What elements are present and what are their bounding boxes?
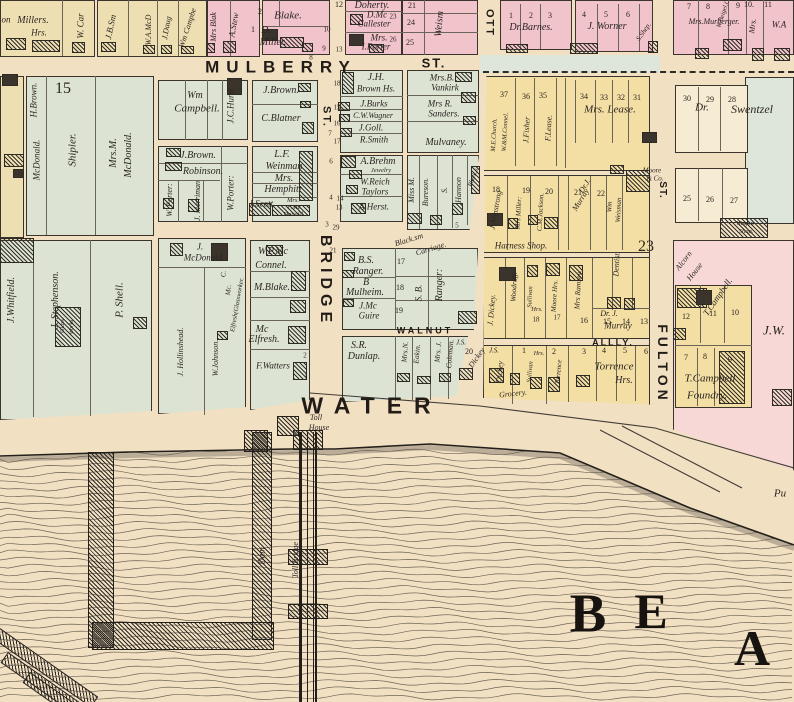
map-label-wagon: Wagon	[736, 221, 754, 228]
map-label-hrs: Hrs.	[615, 376, 633, 386]
building-hatched	[290, 300, 306, 313]
map-label-j-brown: J.Brown.	[263, 86, 299, 96]
building-hatched	[397, 373, 410, 382]
map-label-toll-bridge: Toll Bridge	[292, 542, 300, 578]
map-label-r-smith: R.Smith	[360, 136, 388, 145]
map-label-mcdonald: McDonald.	[33, 140, 42, 181]
water-contour-line	[0, 607, 792, 614]
map-label-j-mc: J.Mc	[359, 302, 377, 311]
building-hatched	[298, 83, 311, 92]
building-hatched	[300, 101, 311, 108]
map-label-6: 6	[644, 348, 648, 356]
parcel-line	[698, 87, 699, 151]
map-label-10: 10	[324, 27, 331, 34]
building-solid	[13, 169, 24, 178]
water-contour-line	[0, 651, 792, 657]
building-hatched	[752, 48, 764, 61]
water-contour-line	[0, 687, 792, 693]
building-hatched	[673, 328, 686, 340]
parcel-line	[395, 336, 396, 401]
map-label-i-porter: I.Porter	[362, 43, 391, 52]
map-label-black-sm: Black.sm	[394, 232, 424, 248]
parcel-line	[428, 248, 429, 329]
map-label-3: 3	[582, 348, 586, 356]
map-label-4: 4	[329, 195, 333, 202]
building-hatched	[463, 116, 476, 125]
parcel-line	[568, 346, 569, 402]
map-label-7: 7	[328, 131, 332, 138]
parcel-line	[565, 78, 566, 168]
map-label-17: 17	[397, 258, 405, 266]
building-hatched	[161, 45, 172, 54]
map-label-13: 13	[336, 47, 343, 54]
map-label-j-merriman: J. Merriman	[194, 181, 202, 221]
map-label-robinson: Robinson.	[183, 167, 223, 177]
map-label-3: 3	[325, 222, 329, 229]
map-label-13: 13	[336, 205, 343, 212]
water-contour-line	[0, 672, 792, 678]
map-label-sullivan: Sullivan	[527, 286, 535, 308]
parcel-line	[507, 176, 508, 250]
parcel-line	[556, 78, 557, 166]
parcel-line	[250, 349, 310, 350]
map-label-w-porter: W.Porter:	[227, 175, 236, 210]
map-label-mcdonald: McDonald	[184, 254, 223, 263]
map-label-harness-shop: Harness Shop.	[495, 242, 548, 251]
map-label-12: 12	[682, 313, 690, 321]
map-label-elfresh: Elfresh.	[248, 335, 279, 345]
parcel-line	[221, 146, 222, 222]
map-label-swentzel: Swentzel	[731, 103, 773, 115]
map-label-shipler: Shipler.	[68, 133, 79, 166]
parcel-line	[128, 0, 129, 56]
building-hatched	[452, 203, 463, 215]
dam-structure	[92, 622, 274, 650]
map-label-mrs: Mrs.	[275, 174, 294, 184]
building-hatched	[430, 215, 442, 225]
parcel-line	[558, 176, 559, 250]
building-hatched	[527, 265, 538, 277]
map-label-23: 23	[638, 239, 654, 255]
map-label-vankirk: Vankirk	[431, 84, 459, 93]
map-label-j-w: J.W.	[763, 324, 785, 337]
map-label-jewelry: Jewelry	[371, 168, 391, 175]
building-hatched	[344, 252, 355, 261]
map-label-w-a: W.A	[772, 21, 786, 30]
map-label-24: 24	[407, 19, 415, 27]
map-label-co: & Co.	[646, 176, 663, 183]
building-hatched	[72, 42, 85, 53]
map-label-mrs-murberger: Mrs.Murberger.	[689, 18, 740, 26]
map-label-foundry: Foundry.	[687, 391, 727, 402]
map-label-j: J.	[197, 243, 203, 252]
map-label-1: 1	[304, 374, 308, 381]
parcel-line	[203, 181, 204, 222]
map-label-c: C.	[220, 270, 228, 277]
map-label-37: 37	[500, 91, 508, 99]
map-label-w-reich: W.Reich	[360, 178, 389, 187]
building-hatched	[506, 44, 528, 53]
building-hatched	[291, 271, 306, 291]
building-hatched	[340, 128, 352, 137]
parcel-line	[157, 0, 158, 56]
water-contour-line	[0, 578, 792, 585]
map-label-j-c-hurst: J.C.Hurst	[227, 88, 236, 123]
map-label-j-s: J.S.	[456, 340, 466, 347]
map-label-bureson: Bureson.	[422, 178, 430, 206]
map-label-mrs-m: Mrs.M.	[109, 138, 119, 167]
map-label-10: 10	[731, 309, 739, 317]
water-contour-line	[0, 571, 792, 578]
building-hatched	[288, 326, 306, 344]
building-hatched	[341, 156, 356, 168]
map-label-donald: Donald	[283, 212, 303, 219]
map-label-4: 4	[582, 11, 586, 19]
map-label-5: 5	[604, 11, 608, 19]
map-label-2: 2	[529, 12, 533, 20]
map-label-w-p-mc: W.P.Mc	[258, 247, 288, 257]
map-label-miller: Miller.	[260, 38, 286, 48]
map-label-21: 21	[330, 248, 337, 255]
water-contour-line	[0, 521, 792, 527]
parcel-line	[675, 345, 752, 346]
map-label-22: 22	[597, 190, 605, 198]
water-contour-line	[0, 478, 792, 484]
map-label-s-b: S. B.	[415, 285, 424, 302]
building-solid	[2, 74, 18, 86]
map-label-8: 8	[706, 3, 710, 11]
river-letter-a: A	[734, 623, 770, 673]
map-label-blake: Blake.	[274, 11, 302, 22]
map-label-l-f: L.F.	[274, 150, 289, 160]
map-label-f-watters: F.Watters	[256, 362, 290, 371]
water-contour-line	[0, 492, 792, 498]
parcel-line	[616, 346, 617, 401]
water-contour-line	[0, 694, 792, 700]
map-label-hrs: Hrs.	[31, 29, 47, 38]
street-label-st: ST.	[422, 57, 447, 70]
water-contour-line	[0, 506, 792, 512]
map-label-house: House	[309, 424, 329, 432]
water-contour-line	[0, 564, 792, 571]
building-hatched	[143, 45, 155, 54]
map-label-callester: Callester	[358, 20, 391, 29]
street-label-st: ST.	[657, 181, 667, 198]
map-label-33: 33	[600, 94, 608, 102]
map-label-mrs-j: Mrs. J.	[433, 341, 442, 363]
map-label-t-campbell: T.Campbell	[685, 374, 736, 385]
building-hatched	[439, 373, 451, 382]
map-label-21: 21	[408, 2, 416, 10]
map-label-dr-barnes: Dr.Barnes.	[509, 23, 552, 33]
map-label-wm: Wm	[606, 201, 614, 212]
map-label-f-lease: F.Lease.	[544, 115, 553, 142]
building-hatched	[343, 299, 354, 307]
map-label-on: on	[2, 16, 11, 25]
map-label-32: 32	[617, 94, 625, 102]
map-label-w-porter: W. Porter:	[166, 183, 174, 216]
street-label-walnut: WALNUT	[397, 327, 454, 336]
map-label-j-hollinshead: J. Hollinshead.	[177, 328, 185, 377]
water-contour-line	[0, 471, 792, 477]
map-label-25: 25	[406, 39, 414, 47]
map-label-weinman: Weinman	[266, 162, 303, 172]
map-label-1: 1	[509, 12, 513, 20]
parcel-line	[250, 320, 310, 321]
map-label-w-a-mcd: W.A.McD	[145, 15, 153, 46]
street-label-st: ST.	[321, 106, 332, 128]
map-label-9: 9	[322, 46, 326, 53]
building-hatched	[346, 185, 358, 194]
water-contour-line	[0, 449, 792, 455]
water-contour-line	[0, 535, 792, 542]
map-label-murray: Murray	[604, 322, 632, 331]
water-contour-line	[0, 550, 792, 557]
map-label-16: 16	[580, 317, 588, 325]
alley-band	[484, 170, 649, 176]
building-solid	[642, 132, 657, 143]
building-hatched	[101, 42, 116, 52]
building-hatched	[648, 41, 658, 53]
parcel-line	[178, 181, 179, 222]
water-contour-line	[0, 593, 792, 600]
map-label-dr-j: Dr. J.	[600, 310, 618, 318]
map-label-ranger: Ranger.	[353, 267, 384, 277]
water-contour-line	[0, 528, 792, 535]
street-label-ott: OTT	[484, 9, 495, 37]
building-hatched	[223, 41, 236, 53]
building-hatched	[772, 389, 792, 406]
map-label-taylors: Taylors	[362, 188, 389, 197]
map-label-3: 3	[548, 12, 552, 20]
water-contour-line	[0, 586, 792, 593]
map-label-hrs: Hrs.	[534, 351, 545, 357]
building-hatched	[165, 162, 182, 171]
map-label-1: 1	[251, 26, 255, 34]
map-label-26: 26	[390, 37, 397, 44]
map-label-8: 8	[703, 353, 707, 361]
map-label-weisman: Weisman	[615, 197, 623, 222]
map-label-7: 7	[684, 354, 688, 362]
building-hatched	[510, 373, 520, 385]
street-label-fulton: FULTON	[656, 324, 670, 403]
river-letter-e: E	[634, 586, 667, 636]
city-block	[745, 77, 794, 224]
map-label-15: 15	[55, 81, 71, 97]
map-label-p-shell: P. Shell.	[115, 282, 126, 318]
map-label-b-s: B.S.	[358, 256, 374, 266]
map-label-mrs-n: Mrs.N.	[400, 341, 409, 362]
parcel-line	[158, 267, 246, 268]
map-label-mrs-b: Mrs.B.	[430, 74, 455, 83]
parcel-line	[596, 346, 597, 401]
parcel-line	[534, 78, 535, 166]
map-label-mrs-r: Mrs R.	[428, 100, 453, 109]
parcel-line	[639, 4, 640, 51]
building-hatched	[170, 243, 183, 256]
building-hatched	[206, 43, 215, 53]
map-label-w-car: W. Car	[77, 13, 86, 38]
parcel-line	[452, 155, 453, 228]
map-label-12: 12	[335, 1, 343, 9]
building-hatched	[217, 331, 228, 340]
map-label-2: 2	[258, 8, 262, 16]
map-label-30: 30	[683, 95, 691, 103]
map-label-a-brehm: A.Brehm	[361, 157, 396, 167]
map-label-d: D.	[261, 26, 271, 36]
map-label-10: 10.	[744, 1, 754, 9]
alley-band	[484, 252, 649, 258]
map-label-j-burks: J.Burks	[360, 100, 387, 109]
building-hatched	[166, 148, 181, 157]
parcel-line	[178, 0, 179, 56]
toll-bridge	[299, 432, 317, 702]
parcel-line	[592, 258, 593, 338]
map-label-36: 36	[522, 93, 530, 101]
map-label-glass: Glass	[60, 319, 66, 333]
building-hatched	[546, 263, 560, 276]
map-label-m-blake: M.Blake.	[254, 283, 290, 293]
parcel-line	[546, 346, 547, 404]
map-label-23: 23	[390, 14, 397, 21]
map-label-2: 2	[552, 348, 556, 356]
map-label-j-fisher: J.Fisher	[522, 117, 531, 144]
map-label-dam: Dam	[258, 547, 267, 565]
map-label-toll: Toll	[310, 414, 322, 422]
riverbank-shading	[0, 448, 794, 549]
building-hatched	[302, 43, 313, 52]
water-contour-line	[0, 456, 792, 462]
parcel-line	[722, 168, 723, 221]
shoreline	[0, 444, 794, 545]
parcel-line	[222, 80, 223, 140]
map-label-34: 34	[580, 93, 588, 101]
map-label-hrs: Hrs.	[531, 307, 542, 314]
map-label-works: Works	[69, 320, 75, 335]
map-label-hemphitt: Hemphitt	[264, 185, 301, 195]
map-label-2: 2	[303, 353, 307, 360]
map-label-s-r: S.R.	[351, 341, 367, 351]
map-label-7: 7	[687, 3, 691, 11]
building-hatched	[32, 40, 60, 52]
parcel-line	[62, 0, 63, 56]
map-label-mc: Mc.	[225, 284, 233, 295]
map-label-5: 5	[455, 223, 459, 230]
water-contour-line	[0, 600, 792, 607]
building-hatched	[723, 39, 742, 51]
map-label-27: 27	[730, 197, 738, 205]
map-label-woodruff: Woodruff.	[509, 272, 518, 302]
map-label-13: 13	[640, 318, 648, 326]
map-label-35: 35	[539, 92, 547, 100]
parcel-line	[698, 0, 699, 54]
parcel-line	[340, 96, 403, 97]
water-contour-line	[0, 679, 792, 685]
building-hatched	[458, 311, 477, 324]
building-hatched	[6, 38, 26, 50]
building-hatched	[455, 72, 472, 82]
map-label-dr: Dr.	[695, 103, 709, 114]
map-label-18: 18	[533, 317, 540, 324]
building-hatched	[4, 154, 24, 167]
map-label-c-blatner: C.Blatner	[261, 114, 300, 124]
map-label-campbell: Campbell.	[174, 104, 220, 115]
building-hatched	[544, 217, 558, 229]
building-hatched	[610, 165, 624, 174]
parcel-line	[515, 78, 516, 166]
parcel-line	[250, 297, 310, 298]
map-label-c-w-wagner: C.W.Wagner	[353, 112, 393, 120]
water-contour-line	[0, 665, 792, 671]
map-label-17: 17	[334, 139, 341, 146]
water-contour-line	[0, 463, 792, 469]
map-label-dunlap: Dunlap.	[348, 352, 381, 362]
building-hatched	[461, 92, 476, 103]
map-label-w-johnson: W.Johnson.	[212, 340, 220, 377]
map-label-dentist: Dentist.	[612, 251, 621, 276]
building-hatched	[607, 297, 621, 309]
map-label-mcdonald: McDonald.	[124, 132, 134, 177]
map-label-19: 19	[522, 187, 530, 195]
street-label-allly: ALLLY.	[592, 339, 634, 348]
building-hatched	[133, 317, 147, 329]
parcel-line	[606, 176, 607, 250]
map-label-j-brown: J.Brown.	[180, 151, 216, 161]
map-label-1: 1	[522, 347, 526, 355]
parcel-line	[635, 346, 636, 401]
map-label-mulvaney: Mulvaney.	[425, 138, 466, 148]
map-label-wm: Wm	[187, 91, 203, 101]
map-label-h-brown: H.Brown.	[30, 83, 39, 118]
map-label-18: 18	[334, 81, 341, 88]
map-label-brown-hs: Brown Hs.	[357, 85, 395, 94]
map-label-millers: Millers.	[17, 16, 48, 26]
dam-structure	[252, 432, 272, 640]
map-label-sanders: Sanders.	[428, 110, 459, 119]
parcel-line	[698, 168, 699, 221]
water-contour-line	[0, 542, 792, 549]
building-hatched	[570, 43, 598, 54]
building-hatched	[576, 375, 590, 387]
map-label-14: 14	[337, 196, 344, 203]
map-label-6: 6	[329, 159, 333, 166]
map-label-9: 9	[728, 356, 732, 364]
water-contour-line	[0, 485, 792, 491]
map-label-mulheim: Mulheim.	[346, 288, 384, 298]
building-hatched	[339, 114, 350, 122]
map-label-26: 26	[706, 196, 714, 204]
street-label-mulberry: MULBERRY	[205, 59, 357, 76]
building-hatched	[407, 213, 422, 224]
parcel-line	[90, 240, 91, 416]
building-hatched	[774, 48, 790, 61]
parcel-line	[524, 258, 525, 338]
map-label-mrs-blak: Mrs Blak	[210, 12, 218, 42]
map-label-torrence: Torrence	[595, 362, 634, 373]
map-label-20: 20	[545, 188, 553, 196]
historic-plat-map: onMillers.Hrs.W. CarJ.B.SmW.A.McDJ.DaugW…	[0, 0, 794, 702]
parcel-line	[158, 180, 220, 181]
water-contour-line	[0, 514, 792, 520]
map-label-16: 16	[334, 121, 341, 128]
water-contour-line	[0, 658, 792, 664]
map-label-31: 31	[633, 94, 641, 102]
map-label-guire: Guire	[359, 312, 380, 321]
building-hatched	[417, 376, 431, 384]
parcel-line	[424, 0, 425, 55]
parcel-line	[568, 176, 569, 250]
parcel-line	[566, 258, 567, 338]
